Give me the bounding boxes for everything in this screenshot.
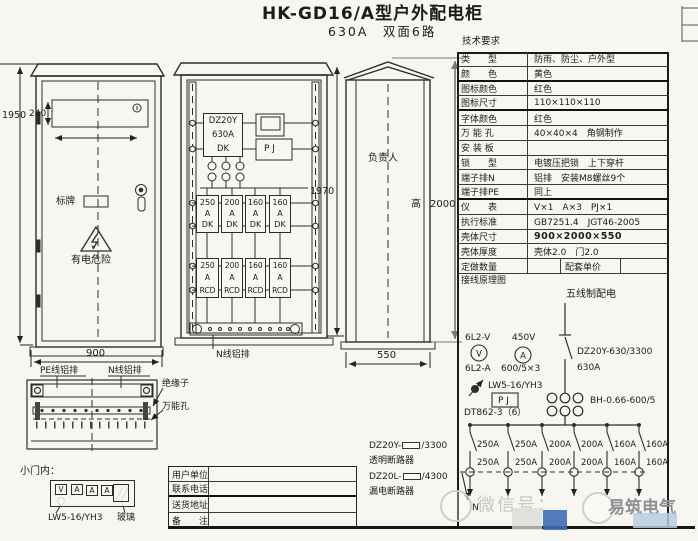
busbar-view [27,376,163,455]
breaker-rcd-2: 200ARCD [221,258,243,298]
ammeter-cell: A [86,485,98,496]
table-row: 安 装 板 [457,141,669,156]
breaker-amp: 160 [248,199,263,207]
breaker-dk-1: 250ADK [196,195,219,233]
voltmeter-model-label: 6L2-V [465,333,490,343]
main-breaker-dk: DK [217,145,229,154]
breaker-unit: A [253,210,258,218]
dim-1950: 1950 [2,111,26,122]
height-label: 高 [411,199,421,211]
schematic-title: 五线制配电 [566,289,616,301]
legend-model-2: DZ20L- [369,472,402,482]
breaker-type: RCD [272,287,288,295]
door-switch-label: LW5-16/YH3 [48,513,103,523]
breaker-rcd-1: 250ARCD [196,258,219,298]
breaker-type: RCD [200,287,216,295]
breaker-amp: 250 [200,199,215,207]
sheet-bottom-border [168,526,695,529]
warning-triangle-icon [81,227,111,251]
breaker-amp: 200 [225,262,239,270]
ct-ratio-label: 600/5×3 [501,364,540,374]
dim-900: 900 [86,348,105,360]
ct-model-label: BH-0.66-600/5 [590,396,655,406]
table-row: 壳体厚度壳体2.0 门2.0 [457,244,669,259]
breaker-type: DK [226,221,237,229]
breaker-dk-3: 160ADK [245,195,266,233]
insulator-label: 绝缘子 [162,379,189,389]
breaker-amp: 250 [200,262,214,270]
main-breaker-model-label: DZ20Y-630/3300 [577,347,652,357]
danger-label: 有电危险 [71,255,111,267]
table-row: 字体颜色红色 [457,111,669,126]
page-subtitle: 630A 双面6路 [328,25,436,39]
main-breaker-amp-label: 630A [577,363,600,373]
phone-field[interactable] [209,482,356,495]
table-row: 端子排N铝排 安装M8螺丝9个 [457,170,669,185]
table-row: 联系电话 [169,482,356,497]
breaker-unit: A [229,274,234,282]
n-bus-label: N线铝排 [216,350,250,360]
legend-model-1: DZ20Y- [369,441,401,451]
neutral-label: N [472,503,479,513]
table-row: 端子排PE同上 [457,185,669,200]
breaker-rcd-4: 160ARCD [269,258,291,298]
dim-2000: 2000 [430,199,455,211]
voltage-label: 450V [512,333,535,343]
legend-line-2: DZ20L-/4300 [369,472,448,482]
ammeter-cell: A [101,485,113,496]
breaker-type: DK [274,221,285,229]
breaker-rcd-3: 160ARCD [245,258,266,298]
breaker-unit: A [253,274,258,282]
schematic-section-label: 接线原理图 [461,276,506,286]
pe-busbar-label: PE线铝排 [40,366,78,376]
voltmeter-cell: V [55,484,67,495]
table-row: 颜 色黄色 [457,67,669,82]
middle-dimension-1970 [327,67,344,336]
breaker-unit: A [277,210,282,218]
sheet-corner-marks [682,6,698,42]
front-cabinet-details [36,82,147,338]
breaker-dk-4: 160ADK [269,195,291,233]
pj-box-label: P J [498,396,509,406]
table-row: 图标尺寸110×110×110 [457,96,669,111]
main-breaker-box: DZ20Y 630A DK [203,113,243,157]
switch-model-label: LW5-16/YH3 [488,381,543,391]
breaker-amp: 160 [248,262,262,270]
table-row: 用户单位 [169,467,356,482]
breaker-unit: A [205,210,210,218]
breaker-type: RCD [248,287,264,295]
glass-window-cell [113,484,129,502]
ammeter-model-label: 6L2-A [465,364,491,374]
table-row: 仪 表V×1 A×3 PJ×1 [457,200,669,215]
nameplate-label: 标牌 [56,197,75,208]
legend-blank-box [403,473,421,480]
breaker-amp: 160 [273,262,287,270]
breaker-type: DK [202,221,213,229]
legend-name-1: 透明断路器 [369,456,414,466]
breaker-amp: 160 [272,199,287,207]
glass-label: 玻璃 [117,513,135,523]
ammeter-cell: A [71,484,83,495]
legend-suffix-2: /4300 [422,472,448,482]
breaker-type: RCD [224,287,240,295]
breaker-dk-2: 200ADK [221,195,243,233]
dim-550: 550 [377,350,396,362]
table-row: 送货地址 [169,497,356,512]
n-busbar-label: N线铝排 [108,366,142,376]
main-breaker-model: DZ20Y [209,117,237,126]
address-field[interactable] [209,497,356,511]
customer-name-field[interactable] [209,467,356,481]
legend-blank-box [402,442,420,449]
breaker-unit: A [205,274,210,282]
customer-info-table: 用户单位 联系电话 送货地址 备 注 [168,466,357,529]
pj-meter-label: P J [264,144,275,154]
spec-header: 技术要求 [462,37,500,48]
table-row: 壳体尺寸900×2000×550 [457,230,669,245]
drawing-sheet: 250A 250A 200A 200A 160A 160A 250A 250A … [0,0,698,541]
breaker-unit: A [277,274,282,282]
dim-240: 240 [29,109,46,119]
breaker-unit: A [229,210,234,218]
legend-line-1: DZ20Y-/3300 [369,441,447,451]
breaker-amp: 200 [224,199,239,207]
universal-hole-label: 万能孔 [162,402,189,412]
spec-table: 类 型防雨、防尘、户外型 颜 色黄色 图标颜色红色 图标尺寸110×110×11… [457,52,669,274]
breaker-type: DK [250,221,261,229]
table-row: 万 能 孔40×40×4 角钢制作 [457,126,669,141]
small-door-label: 小门内： [20,466,60,478]
energy-meter-model-label: DT862-3（6） [464,408,526,418]
table-row: 执行标准GB7251.4 JGT46-2005 [457,215,669,230]
owner-label: 负责人 [368,153,398,165]
table-row: 锁 型电镀压把锁 上下穿杆 [457,156,669,171]
dim-1970: 1970 [310,187,334,198]
legend-name-2: 漏电断路器 [369,487,414,497]
table-row: 图标颜色红色 [457,82,669,97]
table-row-order: 定做数量 配套单价 [457,259,669,274]
table-row: 类 型防雨、防尘、户外型 [457,52,669,67]
main-breaker-amp: 630A [212,131,234,140]
page-title: HK-GD16/A型户外配电柜 [262,5,483,25]
legend-suffix-1: /3300 [421,441,447,451]
